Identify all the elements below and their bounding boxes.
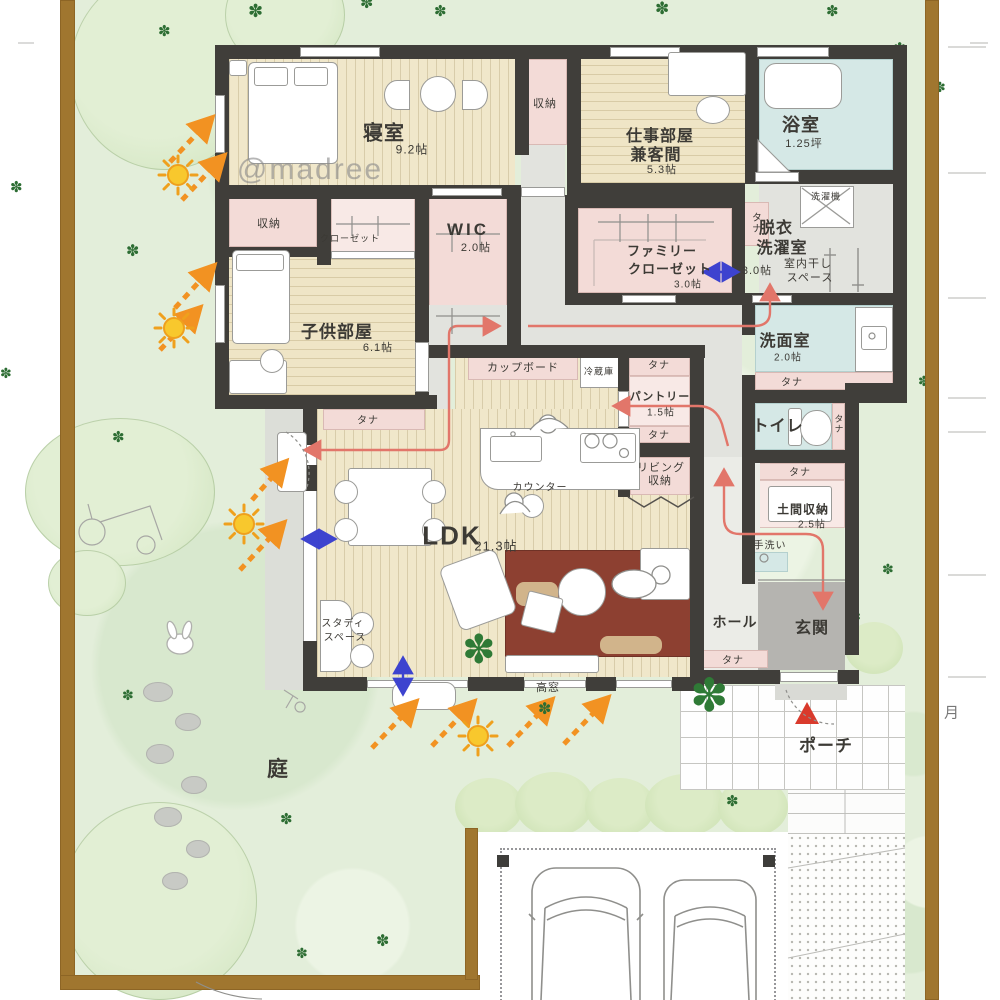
clover-icon: ✽ — [126, 244, 139, 260]
clover-icon: ✽ — [376, 934, 389, 950]
wall-hall-west — [690, 457, 704, 684]
tree — [62, 802, 257, 1000]
clover-icon: ✽ — [248, 2, 263, 20]
dining-table — [348, 468, 432, 546]
label-shelf-doma: タナ — [789, 464, 811, 479]
margin-glyph: 月 — [944, 702, 960, 723]
dining-chair — [334, 480, 358, 504]
site-border-west — [60, 0, 75, 990]
bathtub — [764, 63, 842, 109]
wall-storage-left — [515, 45, 529, 155]
label-study2: スペース — [324, 629, 367, 644]
site-border-east — [925, 0, 939, 1000]
stepping-stone — [154, 807, 182, 827]
label-takamado: 高窓 — [536, 679, 560, 695]
tv-board — [640, 548, 690, 600]
label-muroboshi2: スペース — [787, 269, 834, 285]
label-pantry: パントリー — [630, 388, 691, 404]
wall-work-west — [567, 45, 581, 199]
label-shelf-pantry-top: タナ — [648, 357, 670, 372]
label-ldk-size: 21.3帖 — [474, 536, 517, 555]
porch-plant-icon: ✽ — [690, 672, 729, 718]
label-storage-kids: 収納 — [257, 215, 281, 231]
corridor — [429, 305, 742, 347]
work-desk — [668, 52, 746, 96]
label-doma-size: 2.5帖 — [798, 516, 826, 531]
label-porch: ポーチ — [799, 732, 853, 757]
label-washer: 洗濯機 — [811, 190, 841, 203]
label-bath: 浴室 — [782, 111, 820, 137]
door-senmen — [752, 295, 792, 303]
door-kids — [415, 342, 429, 392]
work-chair — [696, 96, 730, 124]
wall-senmen-south — [745, 390, 907, 403]
label-shelf-kids: タナ — [357, 412, 379, 427]
pillow — [236, 254, 284, 271]
stepping-stone — [181, 776, 207, 794]
wall-fc-east — [732, 195, 745, 305]
corridor-east — [704, 347, 742, 457]
houseplant-icon: ✽ — [462, 630, 496, 670]
wall-ldk-south — [468, 677, 524, 691]
label-shelf-senmen: タナ — [781, 374, 803, 389]
stepping-stone — [146, 744, 174, 764]
hedge — [515, 772, 593, 836]
clover-icon: ✽ — [158, 24, 171, 39]
clover-icon: ✽ — [0, 366, 12, 380]
label-study1: スタディ — [321, 615, 364, 630]
label-datsui-size: 3.0帖 — [742, 262, 772, 278]
label-fridge: 冷蔵庫 — [584, 365, 614, 378]
terrace-cabinet — [277, 432, 307, 492]
stepping-stone — [186, 840, 210, 858]
study-chair — [350, 644, 374, 668]
stepping-stone — [143, 682, 173, 702]
wall-wic-east — [507, 185, 521, 358]
wall-kids-south — [215, 395, 437, 409]
wall-corridor-west — [690, 345, 704, 457]
label-kids-size: 6.1帖 — [363, 339, 393, 355]
clover-icon: ✽ — [726, 794, 739, 809]
site-border-parking — [465, 828, 478, 980]
wall-pantry-west — [618, 358, 629, 393]
wall-toilet-south — [742, 450, 858, 463]
bedroom-chair — [462, 80, 488, 110]
label-fc1: ファミリー — [627, 241, 697, 260]
high-window — [616, 680, 672, 688]
door-pantry — [618, 391, 629, 427]
wall-east-lower — [845, 383, 859, 655]
label-hall: ホール — [713, 612, 758, 632]
clover-icon: ✽ — [10, 180, 23, 195]
label-bedroom-size: 9.2帖 — [396, 141, 429, 158]
wall-entrance-south — [838, 670, 859, 684]
label-shelf-hall: タナ — [722, 652, 744, 667]
window-bedroom-west — [215, 95, 225, 153]
window-post — [303, 641, 317, 677]
kids-chair — [260, 349, 284, 373]
clover-icon: ✽ — [122, 688, 134, 702]
low-cabinet — [505, 655, 599, 673]
nightstand — [229, 60, 247, 76]
label-fc-size: 3.0帖 — [674, 276, 702, 291]
wall-kids-east — [415, 185, 429, 345]
clover-icon: ✽ — [112, 430, 125, 445]
bedroom-table — [420, 76, 456, 112]
window-kids-west — [215, 285, 225, 343]
label-cupboard: カップボード — [487, 359, 559, 375]
clover-icon: ✽ — [280, 812, 293, 827]
toilet-bowl — [800, 410, 832, 446]
door-wic — [432, 188, 502, 196]
wall-bath-west — [745, 45, 759, 184]
label-senmen: 洗面室 — [759, 327, 810, 351]
bedroom-entry — [521, 145, 565, 305]
label-garden: 庭 — [267, 753, 289, 783]
wall-east-upper — [893, 45, 907, 397]
rug-pattern — [600, 636, 662, 654]
bedroom-chair — [384, 80, 410, 110]
window-bedroom-north — [300, 47, 380, 57]
label-shelf-fc: タナ — [748, 212, 763, 234]
stove — [580, 433, 636, 463]
label-shelf-pantry-bottom: タナ — [648, 427, 670, 442]
label-shelf-toilet: タナ — [833, 414, 846, 434]
clover-icon: ✽ — [538, 702, 551, 718]
entrance-steps — [788, 790, 905, 834]
clover-icon: ✽ — [434, 4, 447, 19]
tearai-sink — [750, 552, 788, 572]
dining-chair — [334, 518, 358, 542]
clover-icon: ✽ — [360, 0, 373, 12]
label-senmen-size: 2.0帖 — [774, 349, 802, 364]
vanity-sink — [861, 326, 887, 350]
label-work-size: 5.3帖 — [647, 161, 677, 177]
label-tearai: 手洗い — [754, 537, 787, 552]
garden-bench — [392, 682, 456, 710]
wall-ldk-south — [303, 677, 367, 691]
clover-icon: ✽ — [826, 4, 839, 19]
counter-stool — [520, 494, 544, 518]
floor-plan-canvas: ✽ ✽ ✽ ✽ ✽ ✽ ✽ ✽ ✽ ✽ ✽ ✽ ✽ ✽ ✽ ✽ ✽ ✽ ✽ ✽ … — [0, 0, 1000, 1000]
parking-post — [497, 855, 509, 867]
label-storage-top: 収納 — [533, 95, 557, 111]
door-kids-closet — [331, 251, 415, 259]
label-genkan: 玄関 — [795, 614, 829, 638]
label-counter: カウンター — [513, 479, 568, 494]
wall-kids-east-low — [415, 392, 429, 409]
door-bath — [755, 172, 799, 182]
driveway — [788, 834, 905, 1000]
parking-post — [763, 855, 775, 867]
pillow — [254, 67, 288, 86]
door-bedroom — [521, 187, 565, 197]
label-toilet: トイレ — [752, 412, 803, 436]
window-bath-north — [757, 47, 829, 57]
entrance-outer-step — [775, 684, 847, 700]
pillow — [294, 67, 328, 86]
label-wic: WIC — [447, 220, 489, 240]
rug-round-table — [558, 568, 606, 616]
wall-ldk-south — [586, 677, 616, 691]
label-bath-size: 1.25坪 — [785, 135, 822, 151]
label-living-storage2: 収納 — [648, 472, 672, 488]
wall-fc-north — [565, 195, 745, 208]
clover-icon: ✽ — [296, 946, 308, 960]
clover-icon: ✽ — [655, 0, 669, 17]
stepping-stone — [175, 713, 201, 731]
wall-fc-west — [565, 195, 578, 305]
label-ldk: LDK — [422, 521, 481, 552]
label-wic-size: 2.0帖 — [461, 239, 491, 255]
site-border-south — [60, 975, 480, 990]
parking-boundary — [500, 848, 776, 1000]
kitchen-sink — [490, 436, 542, 462]
label-closet: クローゼット — [320, 232, 380, 245]
watermark: @madree — [237, 153, 383, 187]
door-genkan — [780, 672, 838, 682]
dining-chair — [422, 480, 446, 504]
label-pantry-size: 1.5帖 — [647, 404, 675, 419]
stepping-stone — [162, 872, 188, 890]
clover-icon: ✽ — [882, 562, 894, 576]
wall-toilet-west — [742, 375, 755, 528]
door-family-closet — [622, 295, 676, 303]
